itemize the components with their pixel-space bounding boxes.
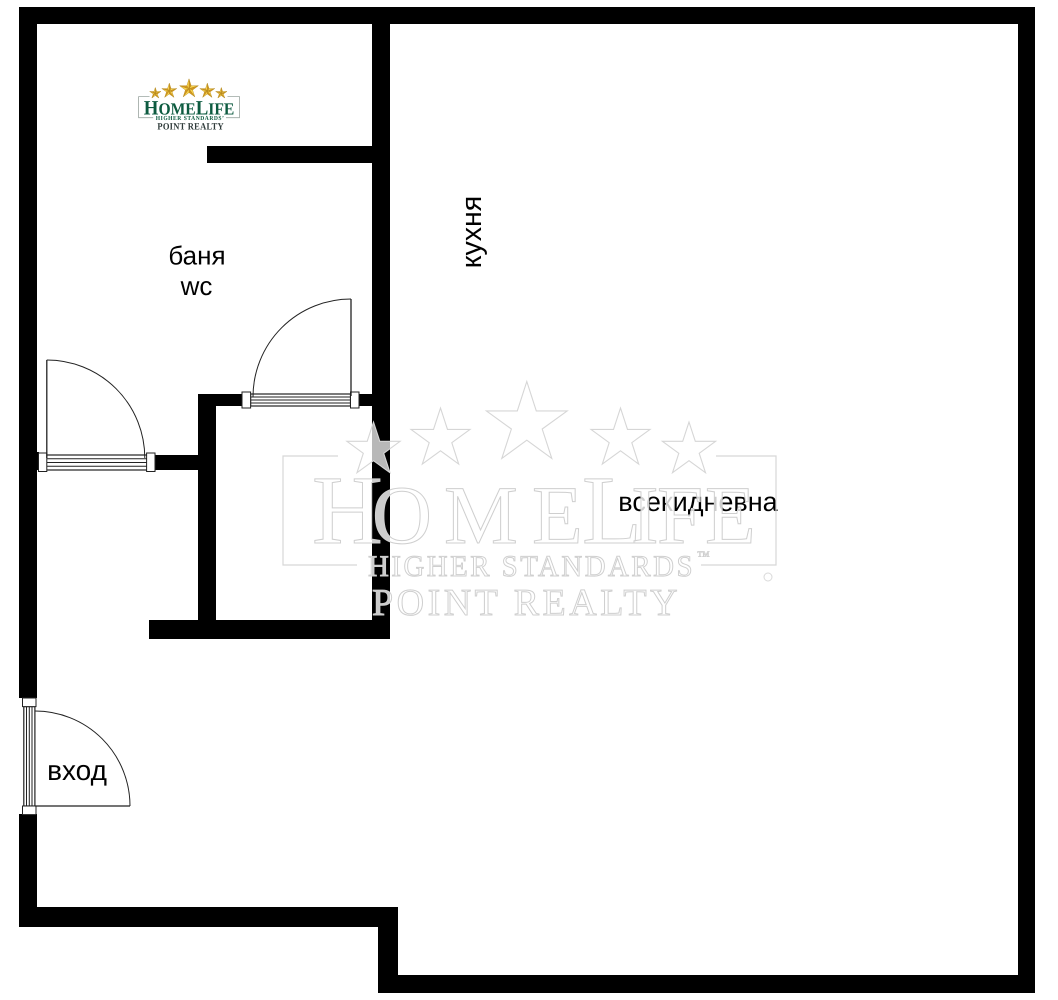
svg-text:POINT REALTY: POINT REALTY bbox=[372, 582, 681, 624]
svg-text:вход: вход bbox=[47, 755, 107, 786]
svg-text:™: ™ bbox=[697, 548, 710, 563]
svg-text:кухня: кухня bbox=[456, 196, 488, 268]
svg-text:POINT REALTY: POINT REALTY bbox=[157, 122, 224, 133]
svg-text:HOMELIFE: HOMELIFE bbox=[312, 457, 756, 565]
svg-text:wc: wc bbox=[180, 271, 213, 301]
svg-text:баня: баня bbox=[168, 241, 225, 271]
svg-text:HIGHER STANDARDS: HIGHER STANDARDS bbox=[368, 550, 695, 583]
